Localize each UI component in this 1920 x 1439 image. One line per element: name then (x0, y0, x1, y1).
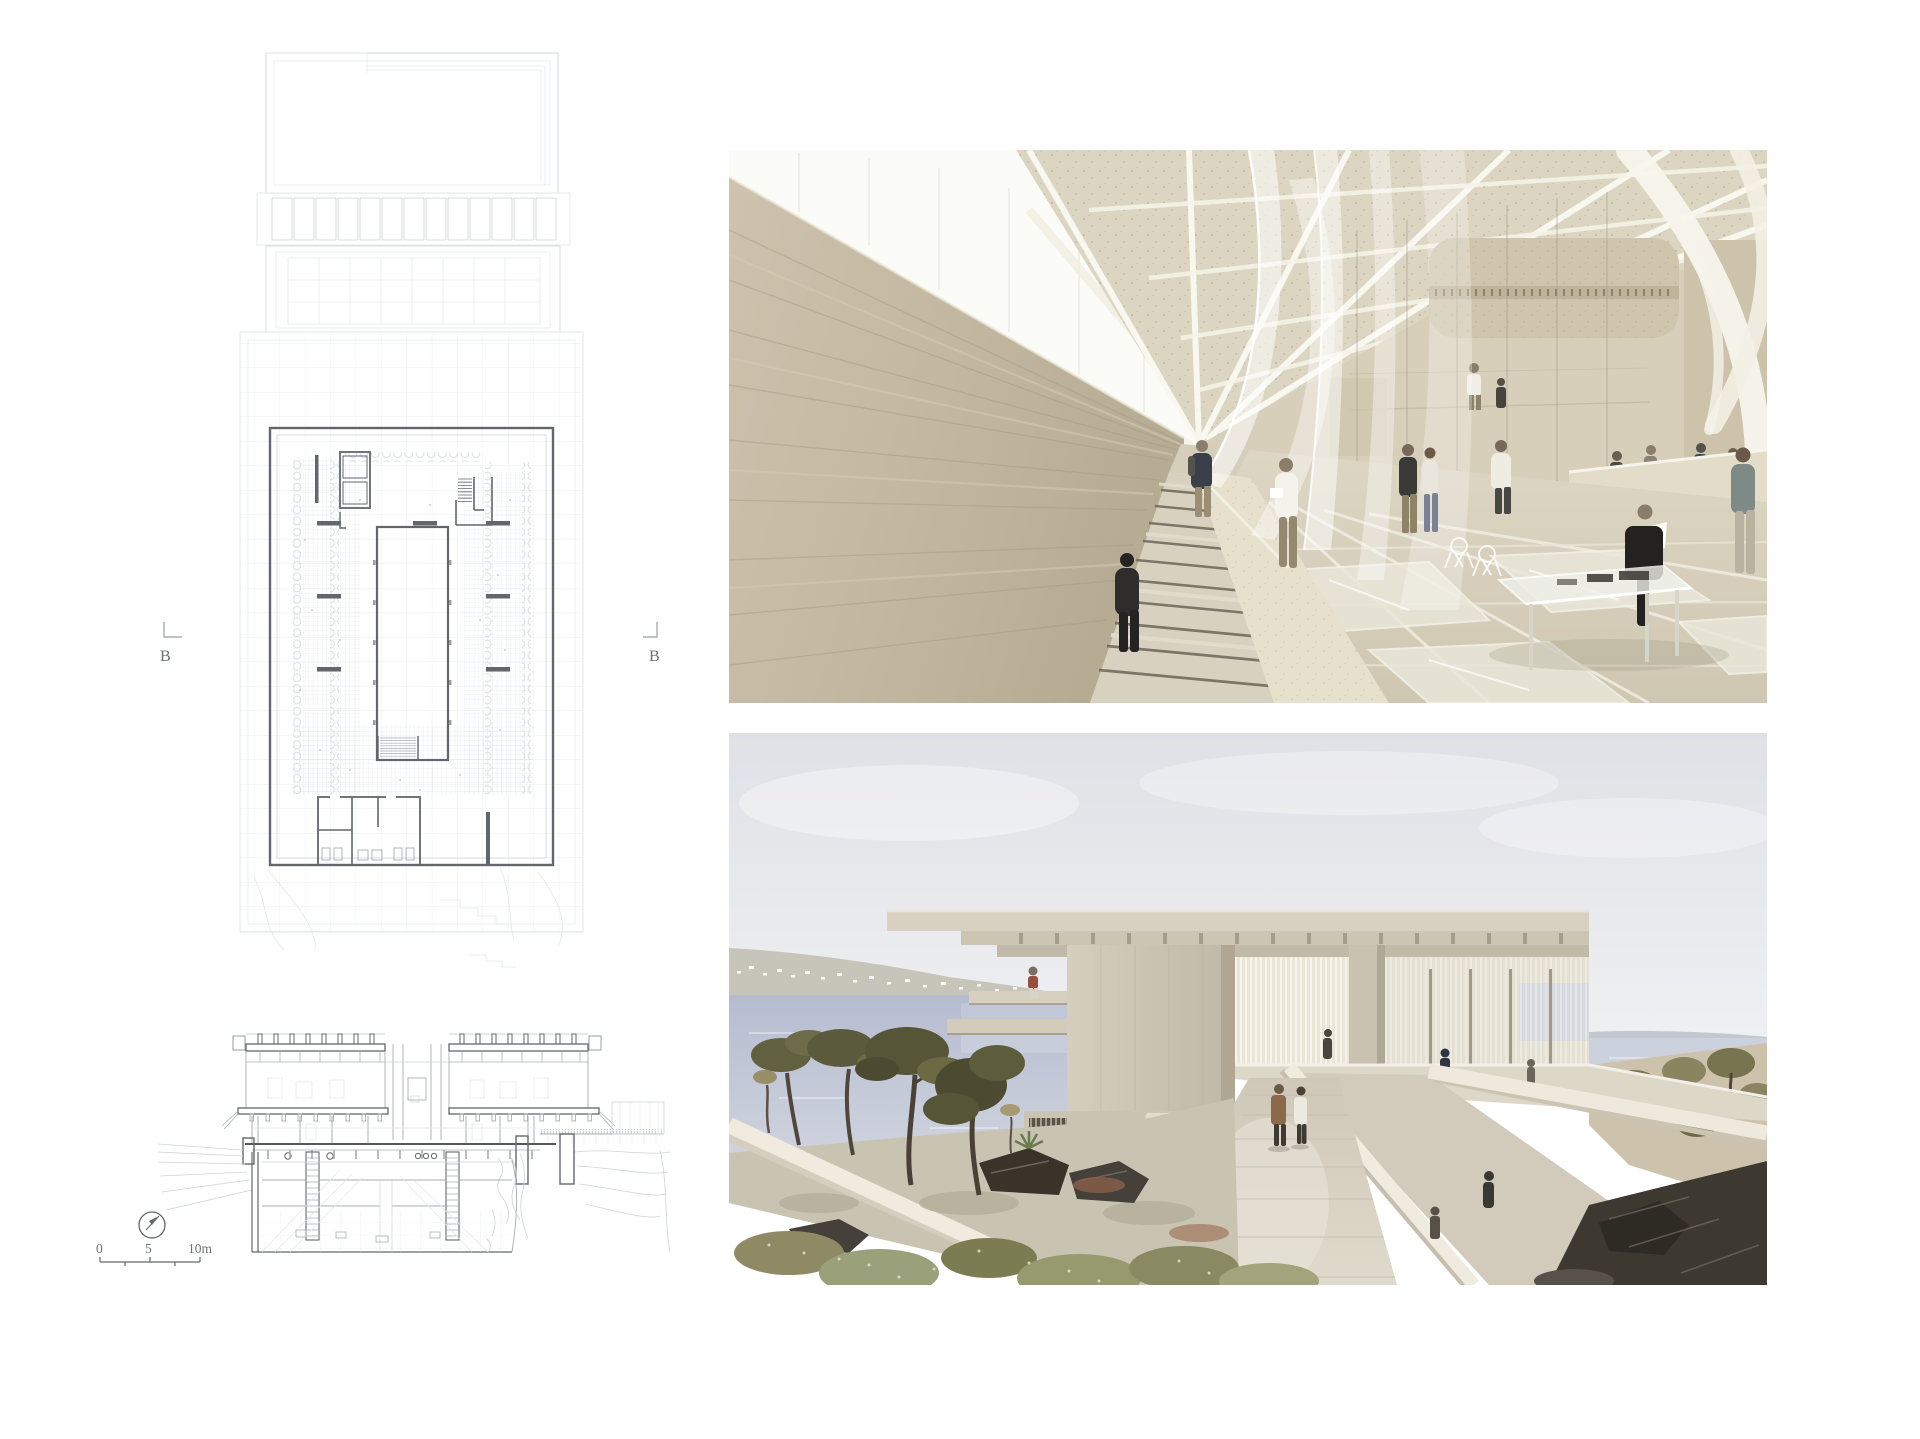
exterior-render (729, 733, 1767, 1285)
person-figure (1028, 967, 1038, 1000)
section-marker-left-label: B (160, 648, 171, 665)
scale-label-0: 0 (96, 1241, 103, 1256)
plan-and-section-drawing: B B (0, 0, 728, 1439)
presentation-board: B B (0, 0, 1920, 1439)
section-marker-right: B (643, 622, 660, 665)
section-drawing (158, 1034, 670, 1252)
scale-bar: 0 5 10m (96, 1241, 213, 1266)
person-figure (1323, 1029, 1332, 1059)
scale-label-10m: 10m (188, 1241, 213, 1256)
section-marker-right-label: B (649, 648, 660, 665)
compass-icon (139, 1212, 165, 1238)
section-marker-left: B (160, 622, 182, 665)
scale-label-5: 5 (145, 1241, 152, 1256)
floor-plan-drawing (240, 53, 583, 967)
interior-render (729, 150, 1767, 703)
